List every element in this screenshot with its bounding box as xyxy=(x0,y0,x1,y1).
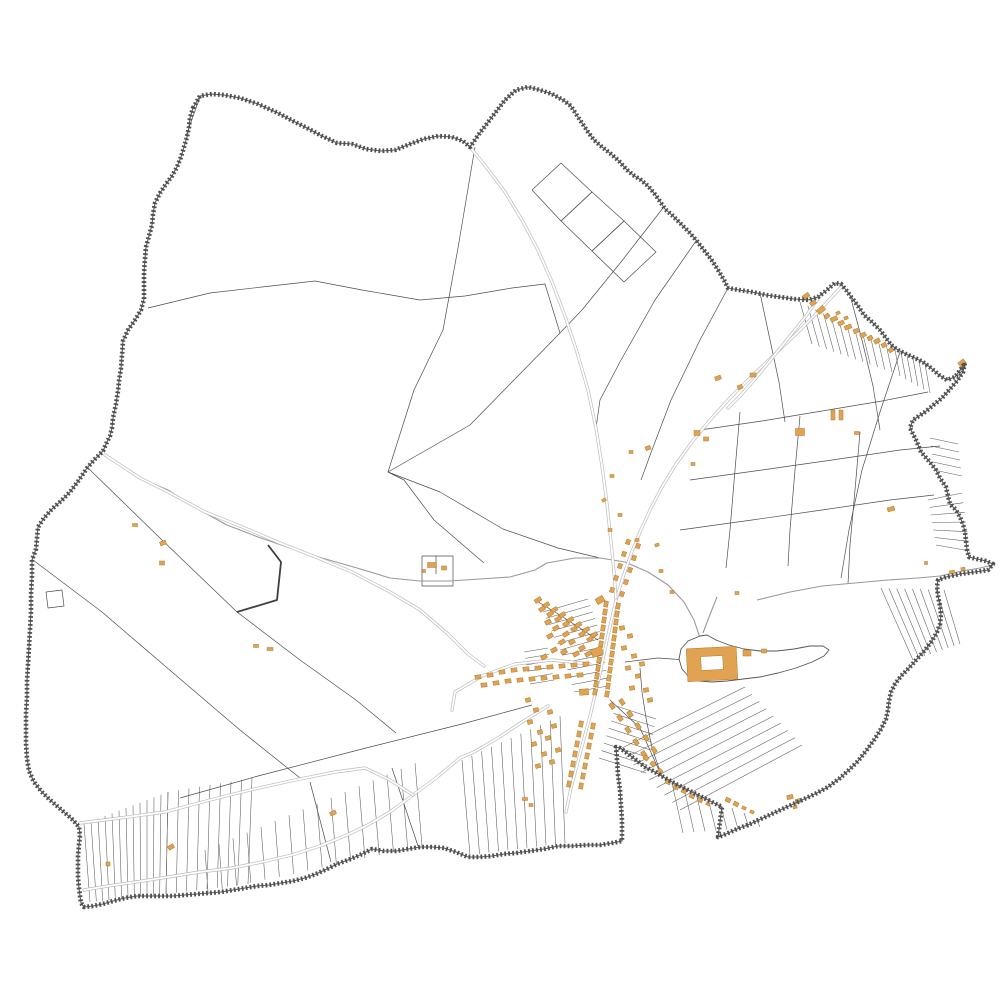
building-footprint xyxy=(639,662,645,667)
building-footprint xyxy=(762,649,767,653)
hatch-line xyxy=(501,742,508,850)
hatch-line xyxy=(317,804,322,868)
building-footprint xyxy=(601,625,606,632)
building-footprint xyxy=(579,721,584,728)
building-footprint xyxy=(555,747,561,752)
road-core xyxy=(616,287,841,600)
building-footprint xyxy=(579,689,588,696)
building-footprint xyxy=(742,806,747,810)
hatch-line xyxy=(901,353,906,380)
building-footprint xyxy=(836,311,841,315)
hatch-line xyxy=(472,756,480,854)
building-footprint xyxy=(859,332,866,338)
building-footprint xyxy=(558,639,565,645)
building-footprint xyxy=(614,619,619,626)
hatch-line xyxy=(345,792,351,861)
commune-boundary xyxy=(26,87,993,907)
building-footprint xyxy=(529,677,535,682)
building-footprint xyxy=(511,668,517,673)
parcel-line xyxy=(388,333,560,472)
building-footprint xyxy=(593,689,598,696)
building-footprint xyxy=(329,810,336,816)
building-footprint xyxy=(578,645,585,651)
building-footprint xyxy=(267,648,273,651)
building-footprint xyxy=(830,316,838,323)
building-footprint xyxy=(529,804,533,807)
hatch-line xyxy=(907,356,912,383)
building-footprint xyxy=(635,674,641,679)
stream-line xyxy=(703,597,717,633)
parcel-line xyxy=(33,560,300,778)
building-footprint xyxy=(571,663,577,668)
building-footprint xyxy=(567,781,572,788)
building-footprint xyxy=(629,451,633,454)
building-footprint xyxy=(423,570,426,573)
building-footprint xyxy=(562,631,569,637)
building-footprint xyxy=(627,634,633,639)
building-footprint xyxy=(604,601,609,608)
building-footprint xyxy=(602,617,607,624)
building-footprint xyxy=(535,763,541,768)
building-footprint xyxy=(551,723,557,728)
hatch-line xyxy=(560,716,565,843)
building-footprint xyxy=(595,673,600,680)
building-footprint xyxy=(546,633,553,639)
parcel-line xyxy=(640,668,662,777)
parcel-line xyxy=(561,192,624,251)
building-footprint xyxy=(725,797,731,803)
building-footprint xyxy=(625,539,630,545)
building-footprint xyxy=(610,475,614,478)
building-footprint xyxy=(647,698,653,703)
hatch-line xyxy=(930,438,958,444)
building-footprint xyxy=(616,603,621,610)
building-footprint xyxy=(615,611,620,618)
building-footprint xyxy=(442,566,447,570)
building-footprint xyxy=(569,771,574,778)
building-footprint xyxy=(523,798,528,801)
building-footprint xyxy=(623,579,628,585)
building-footprint xyxy=(704,437,709,441)
commune-cadastral-map xyxy=(0,0,1000,1000)
parcel-line xyxy=(532,163,592,221)
building-footprint xyxy=(691,463,695,466)
hatch-line xyxy=(176,790,178,893)
building-footprint xyxy=(961,567,965,571)
hatch-line xyxy=(521,734,527,848)
building-footprint xyxy=(694,431,700,436)
building-footprint xyxy=(597,657,602,664)
parcel-line xyxy=(388,472,600,558)
building-footprint xyxy=(645,445,651,450)
hatch-line xyxy=(897,589,925,657)
building-footprint xyxy=(743,650,751,656)
hatch-line xyxy=(599,758,646,773)
hatch-line xyxy=(247,833,251,883)
hatch-line xyxy=(228,782,232,887)
building-footprint xyxy=(589,733,594,740)
hatch-line xyxy=(574,686,608,692)
parcel-line xyxy=(592,221,656,282)
building-footprint xyxy=(844,324,852,330)
parcel-line xyxy=(46,590,64,608)
building-footprint xyxy=(106,862,110,866)
building-footprint xyxy=(750,810,755,814)
building-footprint xyxy=(550,647,557,653)
building-footprint xyxy=(534,596,542,603)
hatch-line xyxy=(491,747,498,852)
stream-line xyxy=(757,565,993,600)
road-core xyxy=(105,455,484,666)
building-footprint xyxy=(547,709,553,714)
building-footprint xyxy=(167,844,174,850)
hatch-line xyxy=(572,678,607,684)
parcel-line xyxy=(560,208,663,333)
road-casing xyxy=(105,455,484,666)
building-footprint xyxy=(844,316,849,320)
hatch-line xyxy=(531,729,537,846)
hatch-line xyxy=(275,821,279,877)
hatch-line xyxy=(931,446,959,452)
building-footprint xyxy=(531,741,537,746)
building-footprint xyxy=(575,741,580,748)
road-core xyxy=(452,660,590,710)
building-footprint xyxy=(853,328,859,334)
hatch-line xyxy=(303,809,308,870)
hatch-line xyxy=(511,738,518,849)
building-footprint xyxy=(881,342,887,348)
building-footprint xyxy=(605,691,610,698)
hatch-line xyxy=(359,786,365,858)
parcel-line xyxy=(700,392,928,430)
building-footprint xyxy=(610,651,615,658)
building-footprint xyxy=(577,731,582,738)
building-footprint xyxy=(559,664,565,669)
building-footprint xyxy=(607,675,612,682)
hatch-line xyxy=(524,648,548,652)
building-footprint xyxy=(577,673,583,678)
road-casing xyxy=(728,296,820,408)
building-footprint xyxy=(867,335,873,341)
building-footprint xyxy=(888,347,894,353)
chateau-courtyard xyxy=(701,655,724,670)
hatch-line xyxy=(933,462,961,468)
parcel-lines-layer xyxy=(33,97,940,862)
building-footprint xyxy=(737,384,743,389)
hatch-line xyxy=(928,493,962,500)
building-footprint xyxy=(584,651,591,657)
building-footprint xyxy=(733,801,739,807)
building-footprint xyxy=(591,723,596,730)
building-footprint xyxy=(608,529,612,532)
hatch-line xyxy=(261,827,265,880)
road-core xyxy=(80,768,413,823)
building-footprint xyxy=(837,320,844,326)
building-footprint xyxy=(553,675,559,680)
building-footprint xyxy=(627,567,632,573)
building-footprint xyxy=(796,429,805,436)
hatch-line xyxy=(238,780,242,886)
building-footprint xyxy=(635,539,639,542)
building-footprint xyxy=(573,751,578,758)
roads-layer xyxy=(80,147,841,890)
building-footprint xyxy=(619,698,626,705)
hatch-line xyxy=(187,789,190,892)
road-casing xyxy=(80,768,413,823)
stream-lines-layer xyxy=(140,478,993,638)
road-core xyxy=(470,147,616,600)
building-footprint xyxy=(505,679,511,684)
parcel-line xyxy=(788,416,800,566)
road-casing xyxy=(616,287,841,600)
building-footprint xyxy=(537,729,543,734)
hatch-line xyxy=(248,778,252,884)
hatch-line xyxy=(932,454,960,460)
commune-boundary-core xyxy=(26,87,993,907)
hatch-line xyxy=(482,751,489,852)
building-footprint xyxy=(547,665,553,670)
building-footprint xyxy=(621,646,627,651)
building-footprint xyxy=(587,743,592,750)
building-footprint xyxy=(549,759,555,764)
cadastral-map-page xyxy=(0,0,1000,1000)
hatch-line xyxy=(233,838,237,885)
parcel-line xyxy=(237,612,396,733)
building-footprint xyxy=(873,338,880,344)
building-footprint xyxy=(600,633,605,640)
building-footprint xyxy=(254,645,259,648)
building-footprint xyxy=(428,563,437,568)
building-footprint xyxy=(949,570,954,574)
building-footprint xyxy=(735,592,739,595)
strip-parcel-hatch-layer xyxy=(84,302,970,902)
hatch-line xyxy=(331,798,336,865)
hatch-line xyxy=(732,808,738,829)
building-footprint xyxy=(621,551,626,557)
building-footprint xyxy=(571,761,576,768)
building-footprint xyxy=(612,635,617,642)
building-footprint xyxy=(585,753,590,760)
building-footprint xyxy=(655,543,660,547)
building-footprint xyxy=(714,375,721,381)
hatch-line xyxy=(881,588,913,660)
building-footprint xyxy=(603,609,608,616)
building-footprint xyxy=(625,666,631,671)
building-footprint xyxy=(481,683,487,688)
hatch-line xyxy=(919,361,924,389)
building-footprint xyxy=(631,654,637,659)
building-footprint xyxy=(925,562,928,565)
building-footprint xyxy=(617,714,624,721)
parcel-line xyxy=(625,658,686,662)
hatch-line xyxy=(913,358,918,386)
building-footprint xyxy=(659,570,663,573)
hatch-line xyxy=(889,588,919,658)
building-footprint xyxy=(133,524,138,527)
hatch-line xyxy=(462,760,470,855)
building-footprint xyxy=(855,432,860,435)
hatch-line xyxy=(415,763,422,846)
parcel-line xyxy=(388,147,475,472)
building-footprint xyxy=(499,670,505,675)
commune-boundary-layer xyxy=(26,87,993,907)
building-footprint xyxy=(581,773,586,780)
building-footprint xyxy=(594,681,599,688)
building-footprint xyxy=(629,686,635,691)
building-footprint xyxy=(487,673,493,678)
building-footprint xyxy=(831,410,835,420)
building-footprint xyxy=(613,627,618,634)
building-footprint xyxy=(545,735,551,740)
building-footprint xyxy=(523,667,529,672)
road-casing xyxy=(470,147,616,600)
hatch-line xyxy=(401,769,408,849)
building-footprint xyxy=(787,794,794,799)
building-footprint xyxy=(839,410,843,420)
building-footprint xyxy=(590,646,603,657)
building-footprint xyxy=(887,506,895,512)
parcel-line xyxy=(690,446,940,480)
building-footprint xyxy=(596,665,601,672)
building-footprint xyxy=(525,697,531,702)
parcel-line xyxy=(680,495,934,530)
building-footprint xyxy=(159,540,166,546)
building-footprint xyxy=(608,667,613,674)
building-footprint xyxy=(579,783,584,790)
hatch-line xyxy=(540,725,546,846)
building-footprint xyxy=(609,702,616,709)
building-footprint xyxy=(631,555,636,561)
emphasized-parcel-line xyxy=(237,545,281,612)
building-footprint xyxy=(475,675,481,680)
building-footprint xyxy=(618,514,622,517)
road-casing xyxy=(452,660,590,710)
building-footprint xyxy=(541,676,547,681)
building-footprint xyxy=(625,726,632,733)
building-footprint xyxy=(535,666,541,671)
building-footprint xyxy=(583,662,589,667)
hatch-line xyxy=(929,503,963,508)
hatch-line xyxy=(604,743,649,757)
road-core xyxy=(728,296,820,408)
parcel-line xyxy=(388,472,484,563)
building-footprint xyxy=(617,563,622,569)
hatch-line xyxy=(219,844,222,889)
hatch-line xyxy=(289,815,294,873)
building-footprint xyxy=(619,626,625,631)
parcel-line xyxy=(180,705,532,798)
building-footprint xyxy=(611,643,616,650)
building-footprint xyxy=(517,678,523,683)
building-footprint xyxy=(493,681,499,686)
parcel-line xyxy=(726,412,740,568)
building-footprint xyxy=(583,763,588,770)
building-footprint xyxy=(568,639,575,645)
building-footprint xyxy=(160,561,165,565)
building-footprint xyxy=(595,595,605,604)
hatch-line xyxy=(944,590,960,644)
building-footprint xyxy=(565,674,571,679)
building-footprint xyxy=(670,591,674,594)
building-footprint xyxy=(609,659,614,666)
building-footprint xyxy=(643,688,649,693)
parcel-line xyxy=(148,281,560,333)
building-footprint xyxy=(606,683,611,690)
building-footprint xyxy=(750,373,756,377)
